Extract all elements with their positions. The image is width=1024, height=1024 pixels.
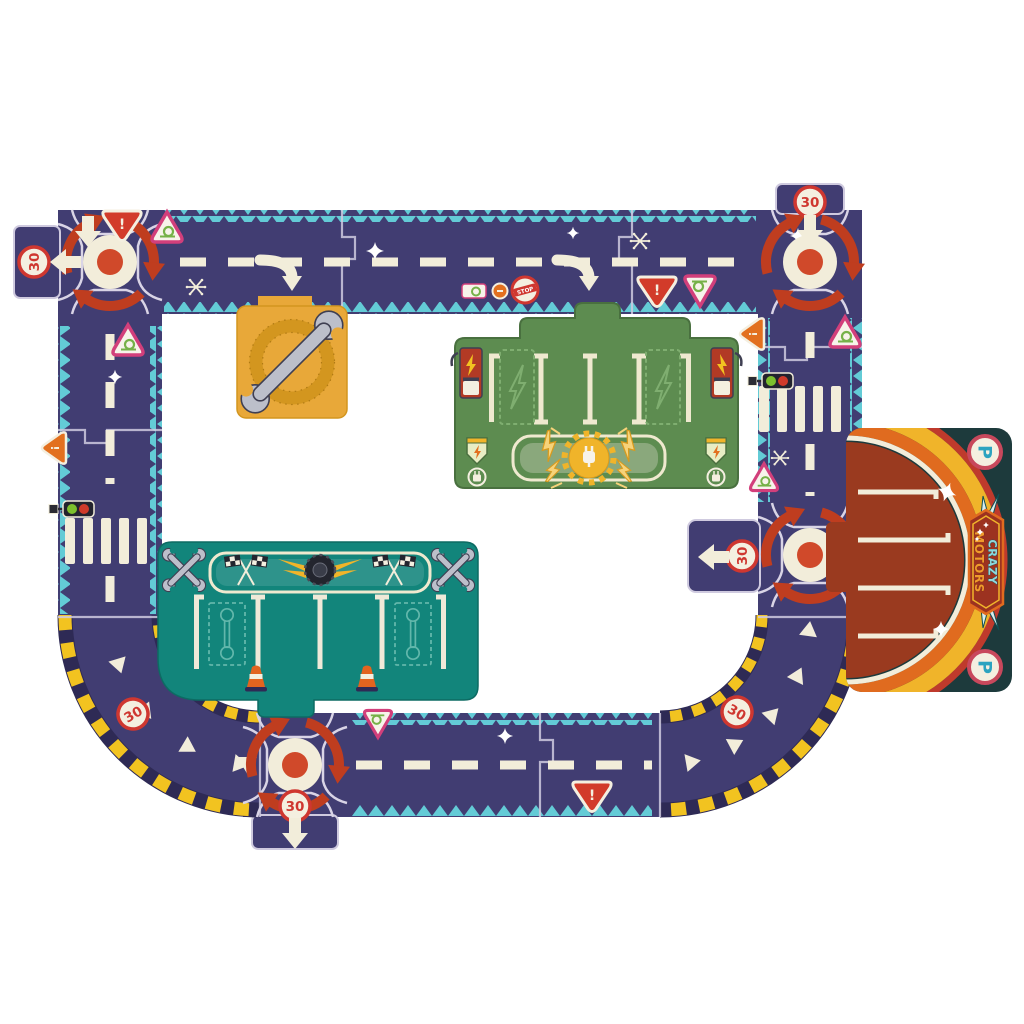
road-segment-top xyxy=(58,210,862,314)
garage-piece xyxy=(231,296,353,423)
brand-line1: CRAZY xyxy=(986,539,1000,585)
snail-plate-sign xyxy=(462,284,486,298)
orange-dot-sign xyxy=(493,284,508,299)
brand-line2: MOTORS xyxy=(972,531,986,592)
pit-stop-piece xyxy=(157,542,479,717)
puzzle-scene: 30 ! ! P STOP xyxy=(0,0,1024,1024)
crazy-motors-circuit: 30 ! ! P STOP xyxy=(0,0,1024,1024)
charging-banner xyxy=(513,428,665,488)
